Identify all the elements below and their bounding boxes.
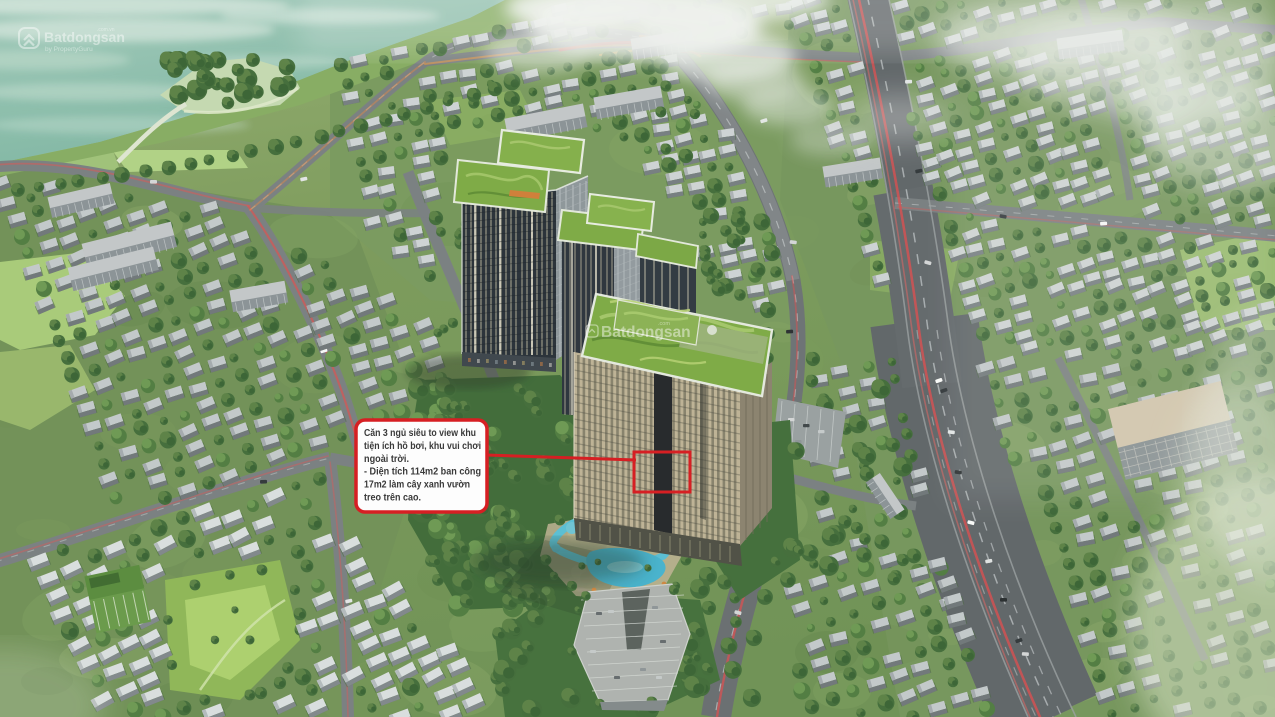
svg-text:.com.vn: .com.vn bbox=[97, 27, 115, 33]
svg-text:.com: .com bbox=[658, 321, 670, 327]
svg-text:- Diện tích 114m2 ban công: - Diện tích 114m2 ban công bbox=[364, 467, 481, 478]
svg-text:by PropertyGuru: by PropertyGuru bbox=[45, 46, 93, 53]
svg-text:17m2 làm cây xanh vườn: 17m2 làm cây xanh vườn bbox=[364, 480, 470, 491]
svg-text:treo trên cao.: treo trên cao. bbox=[364, 493, 421, 504]
svg-text:ngoài trời.: ngoài trời. bbox=[364, 454, 409, 465]
svg-text:tiện ích hồ bơi, khu vui chơi: tiện ích hồ bơi, khu vui chơi bbox=[364, 440, 481, 452]
svg-text:Batdongsan: Batdongsan bbox=[601, 324, 691, 341]
svg-text:Căn 3 ngủ siêu to view khu: Căn 3 ngủ siêu to view khu bbox=[364, 428, 476, 439]
